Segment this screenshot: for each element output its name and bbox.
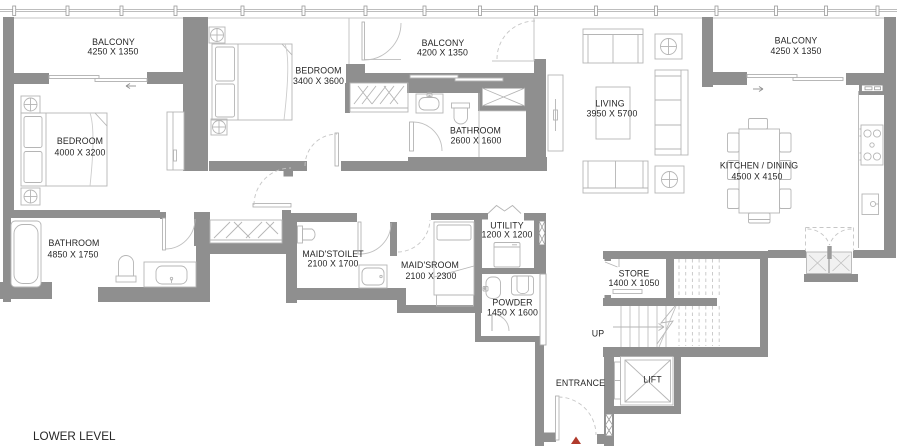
svg-text:BEDROOM: BEDROOM — [295, 66, 341, 76]
svg-text:KITCHEN / DINING: KITCHEN / DINING — [720, 161, 798, 171]
svg-text:LOWER LEVEL: LOWER LEVEL — [33, 430, 116, 443]
svg-text:4250 X 1350: 4250 X 1350 — [88, 47, 139, 57]
svg-text:BALCONY: BALCONY — [422, 38, 465, 48]
svg-text:STORE: STORE — [619, 269, 650, 279]
svg-text:BATHROOM: BATHROOM — [450, 126, 501, 136]
svg-text:1450 X 1600: 1450 X 1600 — [487, 308, 538, 318]
svg-text:LIFT: LIFT — [643, 375, 662, 385]
svg-text:BEDROOM: BEDROOM — [57, 136, 103, 146]
svg-text:1400 X 1050: 1400 X 1050 — [609, 278, 660, 288]
svg-text:4000 X 3200: 4000 X 3200 — [55, 148, 106, 158]
svg-text:BALCONY: BALCONY — [92, 37, 135, 47]
svg-text:2600 X 1600: 2600 X 1600 — [451, 136, 502, 146]
svg-text:2100 X 2300: 2100 X 2300 — [406, 271, 457, 281]
svg-text:ENTRANCE: ENTRANCE — [556, 378, 605, 388]
svg-text:POWDER: POWDER — [492, 298, 532, 308]
svg-text:MAID'SROOM: MAID'SROOM — [401, 260, 459, 270]
svg-text:UP: UP — [592, 329, 604, 339]
svg-text:BATHROOM: BATHROOM — [49, 238, 100, 248]
svg-text:4500 X 4150: 4500 X 4150 — [732, 172, 783, 182]
svg-text:4200 X 1350: 4200 X 1350 — [417, 48, 468, 58]
svg-text:MAID'STOILET: MAID'STOILET — [302, 249, 364, 259]
svg-text:3400 X 3600: 3400 X 3600 — [293, 76, 344, 86]
svg-text:LIVING: LIVING — [595, 99, 625, 109]
svg-text:BALCONY: BALCONY — [775, 36, 818, 46]
svg-text:1200 X 1200: 1200 X 1200 — [482, 230, 533, 240]
svg-text:3950 X 5700: 3950 X 5700 — [587, 109, 638, 119]
svg-text:4850 X 1750: 4850 X 1750 — [48, 250, 99, 260]
svg-text:4250 X 1350: 4250 X 1350 — [771, 46, 822, 56]
svg-text:2100 X 1700: 2100 X 1700 — [308, 259, 359, 269]
